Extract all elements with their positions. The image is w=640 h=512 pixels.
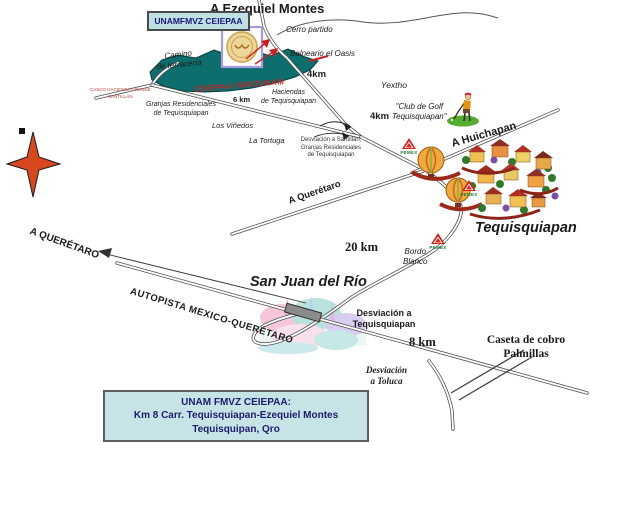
pemex-label: PEMEX bbox=[460, 192, 477, 197]
label-balneario-oasis: Balneario el Oasis bbox=[290, 49, 355, 59]
facility-label-box: UNAMFMVZ CEIEPAA bbox=[147, 11, 250, 31]
pemex-logo-icon bbox=[430, 233, 446, 245]
label-desviacion-toluca: Desviación a Toluca bbox=[366, 365, 407, 388]
pemex-label: PEMEX bbox=[429, 245, 446, 250]
label-casco-hacienda: CASCO HACIENDA GRANDE SANTILLÁN bbox=[90, 87, 151, 101]
label-cerro-partido: Cerro partido bbox=[286, 25, 333, 35]
pemex-logo-icon bbox=[401, 138, 417, 150]
label-4km-balneario: 4km bbox=[307, 69, 326, 81]
label-20km: 20 km bbox=[345, 240, 378, 256]
label-san-juan-del-rio: San Juan del Río bbox=[250, 273, 367, 291]
pemex-station-icon: PEMEX bbox=[456, 180, 482, 197]
road-toluca bbox=[429, 361, 453, 429]
pemex-station-icon: PEMEX bbox=[425, 233, 451, 250]
label-bordo-blanco: Bordo Blanco bbox=[403, 247, 427, 267]
tequisquiapan-town-art-icon bbox=[412, 139, 559, 218]
golfer-icon bbox=[447, 94, 479, 127]
info-line-1: UNAM FMVZ CEIEPAA: bbox=[181, 396, 291, 410]
label-8km: 8 km bbox=[409, 335, 436, 351]
label-club-de-golf: "Club de Golf Tequisquiapan" bbox=[392, 102, 447, 122]
label-los-vinedos: Los Viñedos bbox=[212, 121, 253, 130]
pemex-label: PEMEX bbox=[400, 150, 417, 155]
label-4km-golf: 4km bbox=[370, 111, 389, 123]
info-line-3: Tequisquipan, Qro bbox=[192, 423, 280, 437]
facility-label: UNAMFMVZ CEIEPAA bbox=[154, 16, 242, 26]
label-yextho: Yextho bbox=[381, 80, 407, 91]
label-granjas-residenciales: Granjas Residenciales de Tequisquiapan bbox=[146, 101, 216, 119]
address-info-box: UNAM FMVZ CEIEPAA: Km 8 Carr. Tequisquia… bbox=[103, 390, 369, 442]
label-6km: 6 km bbox=[233, 95, 250, 104]
compass-star-icon bbox=[7, 128, 60, 197]
pemex-station-icon: PEMEX bbox=[396, 138, 422, 155]
road-map: PEMEX PEMEX PEMEX A Ezequiel Montes UNAM… bbox=[0, 0, 640, 512]
label-la-tortuga: La Tortuga bbox=[249, 136, 285, 145]
label-desviacion-santillan: Desviación a Santillán, Granjas Residenc… bbox=[287, 137, 375, 160]
unam-seal-icon bbox=[222, 27, 262, 67]
label-tequisquiapan: Tequisquiapan bbox=[475, 219, 577, 237]
info-line-2: Km 8 Carr. Tequisquiapan-Ezequiel Montes bbox=[134, 409, 338, 423]
road-queretaro-branch bbox=[232, 171, 423, 234]
label-desviacion-tequisquiapan: Desviación a Tequisquiapan bbox=[338, 308, 430, 331]
label-caseta-cobro: Caseta de cobro Palmillas bbox=[470, 333, 582, 362]
pemex-logo-icon bbox=[461, 180, 477, 192]
label-haciendas: Haciendas de Tequisquiapan bbox=[261, 89, 316, 107]
